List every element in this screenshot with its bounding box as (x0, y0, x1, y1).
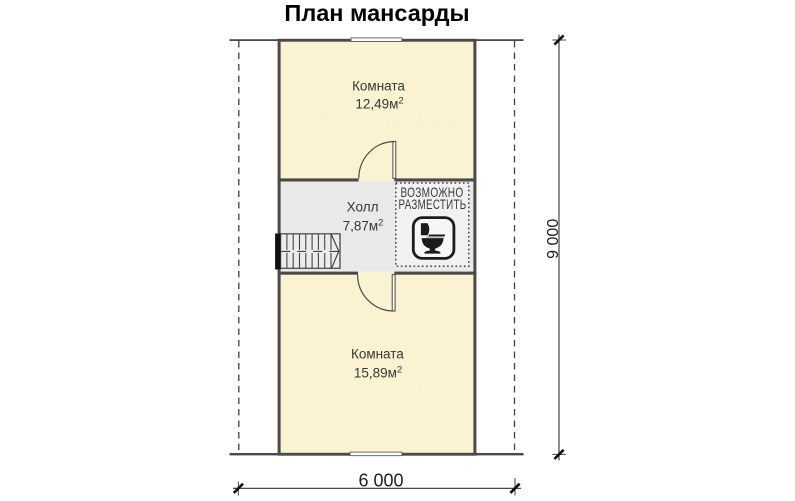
svg-text:7,87м2: 7,87м2 (343, 217, 384, 233)
svg-text:6 000: 6 000 (358, 470, 403, 490)
svg-text:9 000: 9 000 (545, 219, 562, 259)
svg-text:www.egrid.ru: www.egrid.ru (304, 110, 454, 130)
svg-text:15,89м2: 15,89м2 (354, 364, 402, 380)
svg-text:РАЗМЕСТИТЬ: РАЗМЕСТИТЬ (399, 196, 467, 212)
svg-text:Холл: Холл (347, 200, 379, 215)
svg-text:Комната: Комната (352, 78, 405, 93)
svg-text:Комната: Комната (351, 347, 404, 362)
svg-text:План мансарды: План мансарды (284, 0, 469, 26)
svg-text:12,49м2: 12,49м2 (355, 96, 403, 112)
